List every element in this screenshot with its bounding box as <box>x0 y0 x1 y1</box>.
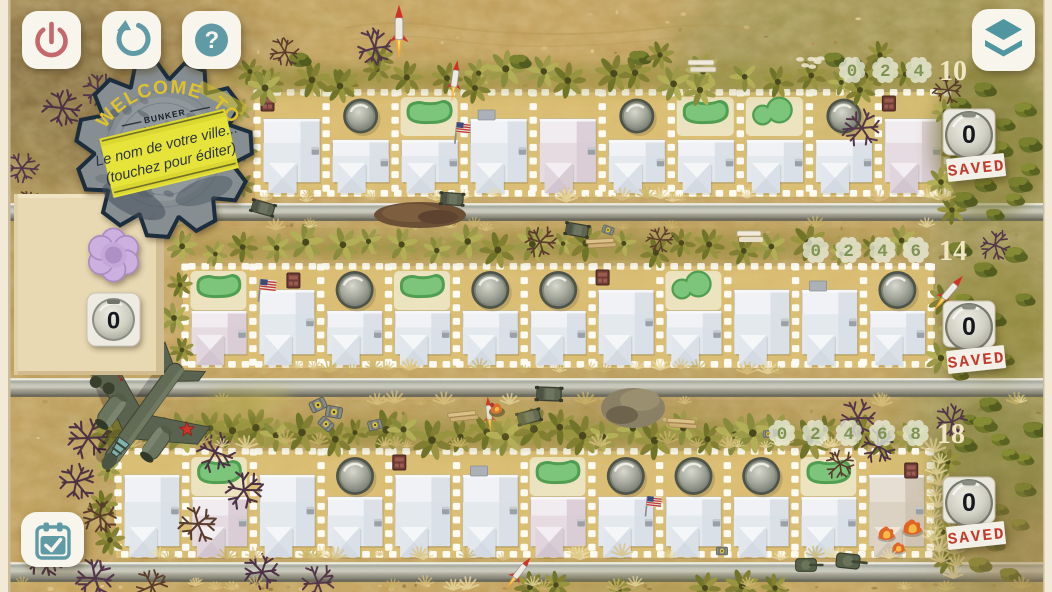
svg-text:0: 0 <box>107 308 120 335</box>
svg-text:6: 6 <box>877 425 888 445</box>
svg-text:10: 10 <box>939 56 967 87</box>
svg-text:?: ? <box>204 27 219 54</box>
svg-text:4: 4 <box>877 242 888 262</box>
svg-text:0: 0 <box>962 313 976 341</box>
svg-text:0: 0 <box>811 242 822 262</box>
svg-text:14: 14 <box>939 236 967 267</box>
svg-text:2: 2 <box>843 242 854 262</box>
svg-text:18: 18 <box>937 419 965 450</box>
svg-text:4: 4 <box>913 62 924 82</box>
svg-text:0: 0 <box>962 121 976 149</box>
svg-text:6: 6 <box>911 242 922 262</box>
svg-text:0: 0 <box>962 489 976 517</box>
svg-text:0: 0 <box>777 425 788 445</box>
svg-text:8: 8 <box>910 425 921 445</box>
svg-text:2: 2 <box>880 62 891 82</box>
svg-text:4: 4 <box>844 425 855 445</box>
svg-text:2: 2 <box>810 425 821 445</box>
svg-text:0: 0 <box>847 62 858 82</box>
